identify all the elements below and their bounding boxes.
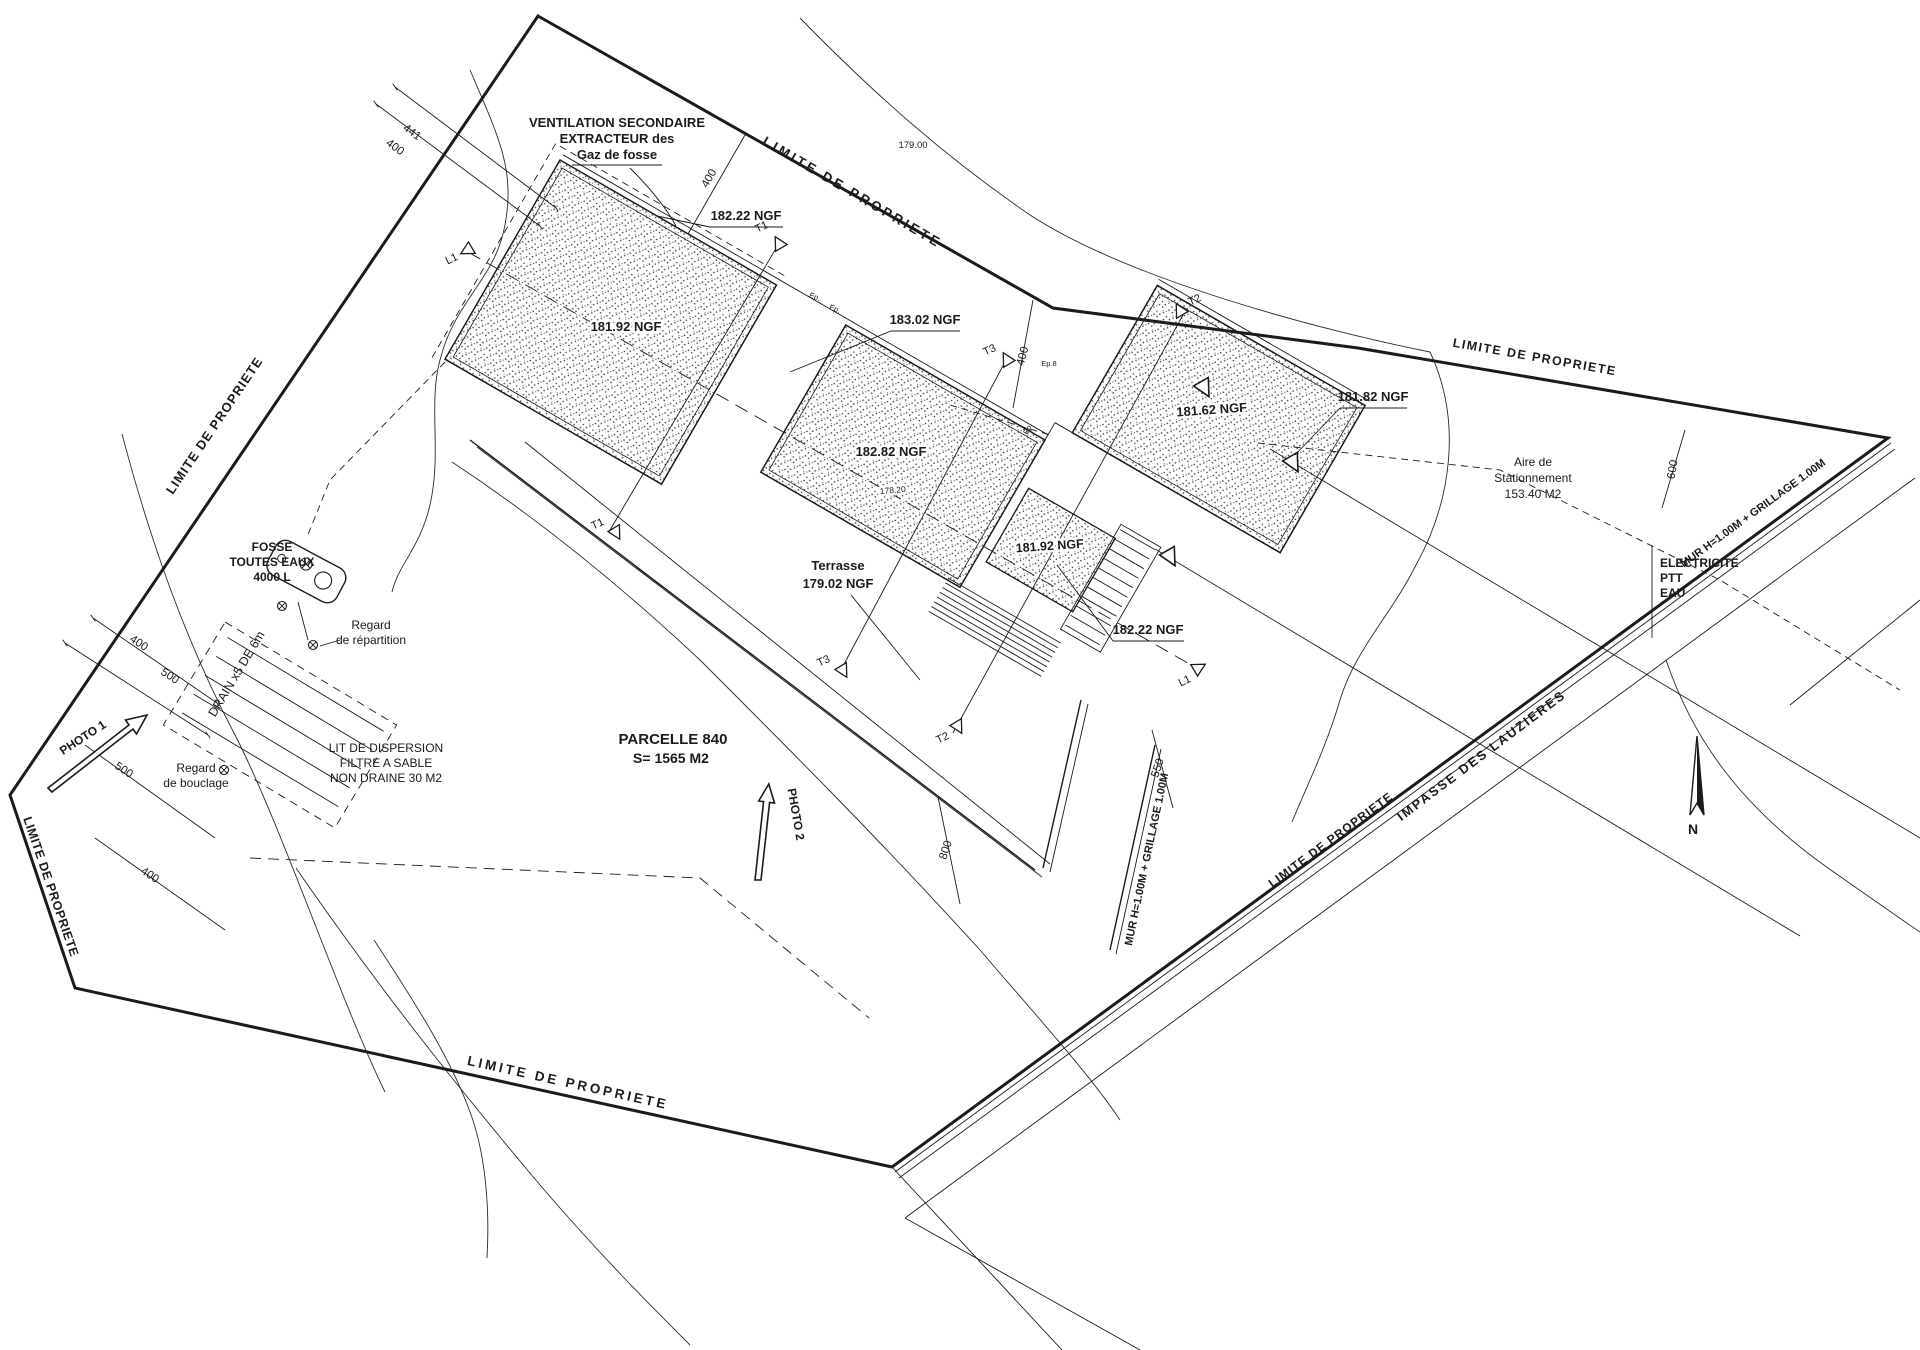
- tank-line3: 4000 L: [253, 570, 290, 584]
- section-marker-icon: [949, 716, 967, 734]
- level-181-92-main: 181.92 NGF: [591, 319, 662, 334]
- dim-400: 400: [699, 167, 719, 190]
- dim-400: 400: [383, 137, 406, 158]
- property-boundary: [10, 16, 1895, 1178]
- ventilation-line3: Gaz de fosse: [577, 147, 657, 162]
- topographic-contours: [122, 18, 1920, 1345]
- parking-label: Aire de Stationnement 153.40 M2: [1494, 455, 1572, 501]
- utility-eau: EAU: [1660, 586, 1685, 600]
- dim-500: 500: [112, 760, 135, 781]
- parking-line3: 153.40 M2: [1505, 487, 1562, 501]
- marker-l1: L1: [444, 251, 460, 267]
- section-marker-icon: [1188, 659, 1206, 677]
- tank-line2: TOUTES EAUX: [229, 555, 314, 569]
- marker-t3: T3: [815, 653, 832, 669]
- section-marker-icon: [770, 237, 788, 255]
- site-plan-drawing: T1 T1 T2 T2 T3 T3 L1 L1: [0, 0, 1920, 1350]
- inspection-box-icon: [278, 602, 287, 611]
- distribution-box-line1: Regard: [351, 618, 390, 632]
- ventilation-line2: EXTRACTEUR des: [560, 131, 675, 146]
- photo-1-marker: PHOTO 1: [48, 715, 147, 792]
- ventilation-line1: VENTILATION SECONDAIRE: [529, 115, 705, 130]
- marker-t1: T1: [589, 516, 606, 532]
- parcel-name: PARCELLE 840: [619, 731, 728, 748]
- site-plan-sheet: T1 T1 T2 T2 T3 T3 L1 L1: [0, 0, 1920, 1350]
- utility-ptt: PTT: [1660, 571, 1683, 585]
- note-ep: Ep.: [828, 302, 842, 314]
- loop-box-line2: de bouclage: [163, 776, 229, 790]
- level-182-22-top: 182.22 NGF: [711, 208, 782, 223]
- section-marker-icon: [834, 660, 852, 678]
- dim-400: 400: [127, 633, 150, 654]
- parking-line1: Aire de: [1514, 455, 1552, 469]
- drain-field: [163, 622, 396, 828]
- contour-label-179: 179.00: [898, 140, 927, 151]
- drain-label: DRAIN x5 DE 6m: [206, 629, 268, 720]
- marker-l1: L1: [1177, 673, 1193, 689]
- boundary-label-south: LIMITE DE PROPRIETE: [466, 1053, 670, 1112]
- road-name-label: IMPASSE DES LAUZIERES: [1394, 687, 1568, 824]
- boundary-label-west: LIMITE DE PROPRIETE: [20, 815, 81, 959]
- photo-2-label: PHOTO 2: [784, 787, 807, 841]
- boundary-label-northeast: LIMITE DE PROPRIETE: [1452, 336, 1618, 379]
- bed-line1: LIT DE DISPERSION: [329, 741, 443, 755]
- note-ep8: Ep.8: [1041, 359, 1056, 368]
- dim-800: 800: [937, 839, 954, 861]
- level-181-82: 181.82 NGF: [1338, 389, 1409, 404]
- parcel-area: S= 1565 M2: [633, 750, 709, 766]
- parking-line2: Stationnement: [1494, 471, 1572, 485]
- section-marker-icon: [998, 353, 1016, 371]
- dim-500: 500: [158, 666, 181, 687]
- marker-t3: T3: [981, 342, 998, 358]
- section-marker-icon: [607, 522, 625, 540]
- note-ep: Ep.: [808, 290, 822, 302]
- north-label: N: [1688, 821, 1698, 837]
- boundary-label-road: LIMITE DE PROPRIETE: [1266, 789, 1396, 890]
- loop-box-line1: Regard: [176, 761, 215, 775]
- level-183-02: 183.02 NGF: [890, 312, 961, 327]
- terrace-line1: Terrasse: [811, 558, 864, 573]
- terrace-line2: 179.02 NGF: [803, 576, 874, 591]
- boundary-label-top: LIMITE DE PROPRIETE: [760, 134, 945, 251]
- dim-600: 600: [1665, 459, 1680, 480]
- dim-400: 400: [1015, 345, 1032, 367]
- photo-2-marker: PHOTO 2: [755, 784, 807, 880]
- loop-box-icon: [220, 766, 229, 775]
- building-slab-181-62: [1072, 285, 1365, 552]
- boundary-label-northwest: LIMITE DE PROPRIETE: [163, 354, 266, 497]
- bed-line2: FILTRE A SABLE: [340, 756, 432, 770]
- level-182-82: 182.82 NGF: [856, 444, 927, 459]
- distribution-box-icon: [309, 641, 318, 650]
- level-182-22-stairs: 182.22 NGF: [1113, 622, 1184, 637]
- north-arrow: N: [1688, 736, 1704, 837]
- bed-line3: NON DRAINE 30 M2: [330, 771, 442, 785]
- parcel-title: PARCELLE 840 S= 1565 M2: [619, 731, 728, 766]
- distribution-box-line2: de répartition: [336, 633, 406, 647]
- marker-t2: T2: [934, 730, 951, 746]
- flow-arrow-icon: [1160, 546, 1183, 569]
- tank-line1: FOSSE: [252, 540, 293, 554]
